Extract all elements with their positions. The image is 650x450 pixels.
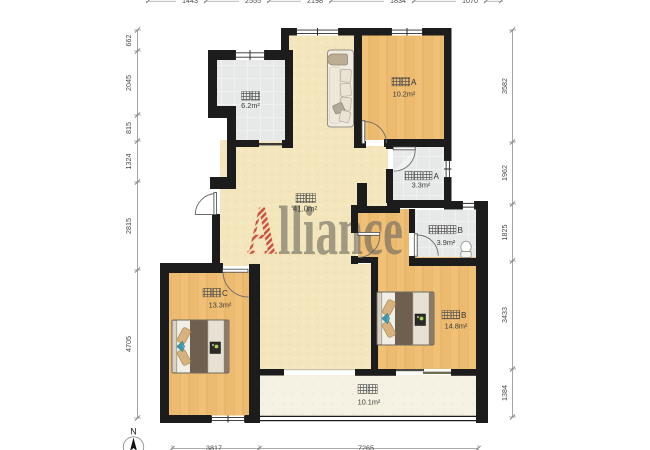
svg-text:6.2m²: 6.2m² bbox=[241, 101, 260, 110]
svg-text:3.3m²: 3.3m² bbox=[412, 181, 431, 190]
svg-text:B: B bbox=[458, 226, 464, 235]
svg-text:41.0m²: 41.0m² bbox=[293, 205, 318, 214]
svg-text:14.8m²: 14.8m² bbox=[445, 322, 468, 331]
svg-text:1443: 1443 bbox=[182, 0, 198, 5]
svg-text:3582: 3582 bbox=[500, 78, 509, 94]
svg-text:1324: 1324 bbox=[124, 154, 133, 170]
svg-text:1384: 1384 bbox=[500, 385, 509, 401]
svg-text:3433: 3433 bbox=[500, 307, 509, 323]
svg-text:4705: 4705 bbox=[124, 336, 133, 352]
svg-text:662: 662 bbox=[124, 35, 133, 47]
svg-text:3.9m²: 3.9m² bbox=[437, 238, 456, 247]
svg-text:2815: 2815 bbox=[124, 218, 133, 234]
svg-text:1962: 1962 bbox=[500, 165, 509, 181]
svg-text:2045: 2045 bbox=[124, 75, 133, 91]
svg-text:3817: 3817 bbox=[206, 444, 222, 450]
svg-text:1825: 1825 bbox=[500, 225, 509, 241]
svg-text:2198: 2198 bbox=[307, 0, 323, 5]
svg-text:1834: 1834 bbox=[390, 0, 406, 5]
svg-text:815: 815 bbox=[124, 122, 133, 134]
svg-text:N: N bbox=[130, 427, 137, 437]
svg-text:2555: 2555 bbox=[245, 0, 261, 5]
svg-text:7265: 7265 bbox=[358, 444, 374, 450]
svg-text:A: A bbox=[434, 172, 440, 181]
svg-text:B: B bbox=[461, 311, 467, 320]
svg-text:1070: 1070 bbox=[462, 0, 478, 5]
svg-text:10.1m²: 10.1m² bbox=[358, 398, 381, 407]
svg-text:10.2m²: 10.2m² bbox=[393, 90, 416, 99]
svg-text:13.3m²: 13.3m² bbox=[209, 301, 232, 310]
svg-text:C: C bbox=[222, 289, 228, 298]
svg-text:A: A bbox=[247, 193, 277, 270]
svg-text:A: A bbox=[411, 78, 417, 87]
